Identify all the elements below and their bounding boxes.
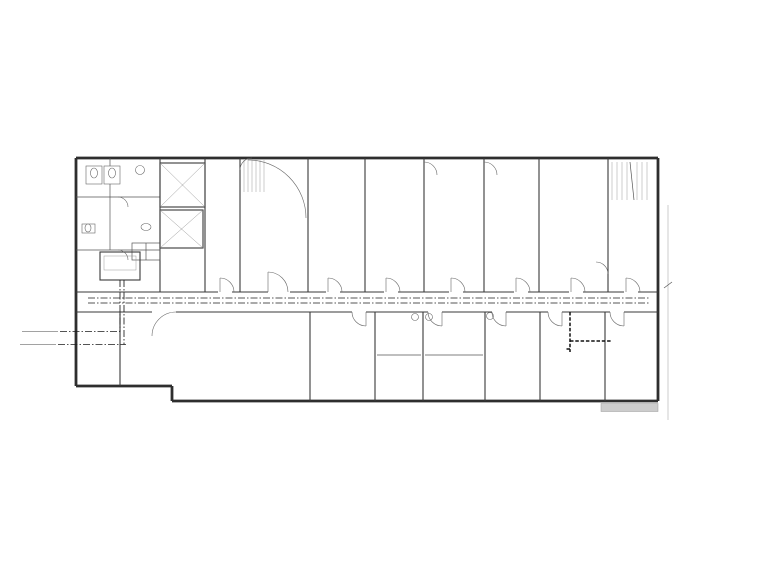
ahu-hdx-box <box>100 252 140 280</box>
floor-plan-drawing <box>0 0 760 570</box>
fixtures <box>82 158 672 420</box>
toilet-fixtures <box>82 166 151 234</box>
stair-lt2 <box>612 162 647 200</box>
exterior-step-slab <box>601 404 658 412</box>
elevator-accessible <box>160 163 205 207</box>
stair-lt1 <box>240 158 306 218</box>
cad-floorplan-sheet <box>0 0 760 570</box>
elevator-shaft <box>160 210 203 248</box>
sink <box>412 314 419 321</box>
corridor-walls <box>76 291 658 313</box>
door-arcs <box>118 162 640 336</box>
partitions-top <box>160 158 608 292</box>
